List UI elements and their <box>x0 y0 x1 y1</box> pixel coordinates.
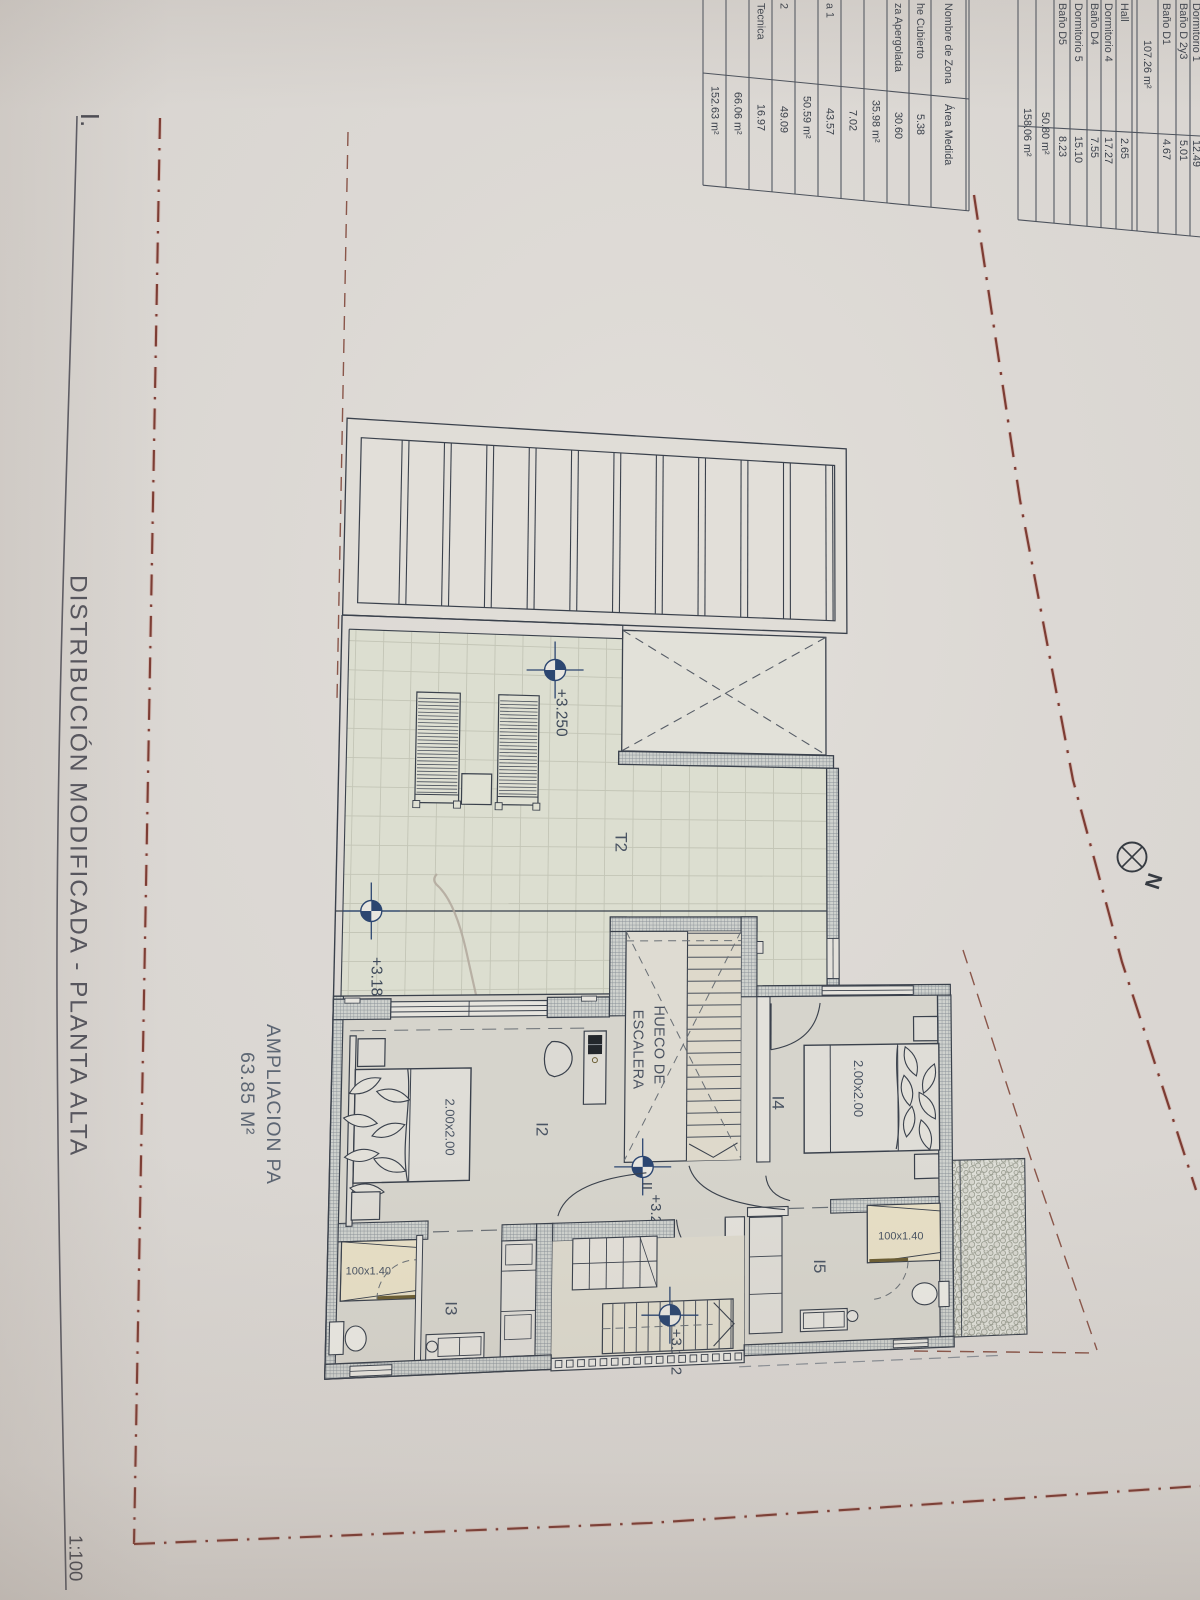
svg-text:T2: T2 <box>611 832 630 852</box>
svg-text:2.00x2.00: 2.00x2.00 <box>443 1098 458 1155</box>
svg-text:2.00x2.00: 2.00x2.00 <box>851 1060 866 1117</box>
svg-text:49.09: 49.09 <box>778 106 790 133</box>
svg-text:Área Medida: Área Medida <box>942 104 955 165</box>
svg-text:15.10: 15.10 <box>1072 136 1084 163</box>
svg-text:+3.250: +3.250 <box>553 689 570 737</box>
svg-text:63.85 M²: 63.85 M² <box>236 1052 258 1135</box>
svg-text:4.67: 4.67 <box>1160 139 1172 160</box>
svg-text:158.06 m²: 158.06 m² <box>1021 108 1033 157</box>
svg-text:I4: I4 <box>769 1096 788 1110</box>
svg-text:50.80 m²: 50.80 m² <box>1039 112 1051 155</box>
svg-text:5.01: 5.01 <box>1177 140 1189 161</box>
svg-text:7.55: 7.55 <box>1088 137 1100 158</box>
svg-text:17.27: 17.27 <box>1102 137 1114 164</box>
svg-text:5.38: 5.38 <box>914 114 926 135</box>
svg-text:I2: I2 <box>532 1122 551 1136</box>
svg-text:7.02: 7.02 <box>847 110 859 131</box>
svg-text:12.49: 12.49 <box>1190 140 1200 167</box>
svg-text:HUECO DE: HUECO DE <box>651 1006 667 1085</box>
svg-text:2.65: 2.65 <box>1118 138 1130 159</box>
svg-text:ESCALERA: ESCALERA <box>630 1010 646 1090</box>
svg-text:30.60: 30.60 <box>892 112 904 139</box>
svg-text:43.57: 43.57 <box>824 108 836 135</box>
svg-text:8.23: 8.23 <box>1056 136 1068 157</box>
